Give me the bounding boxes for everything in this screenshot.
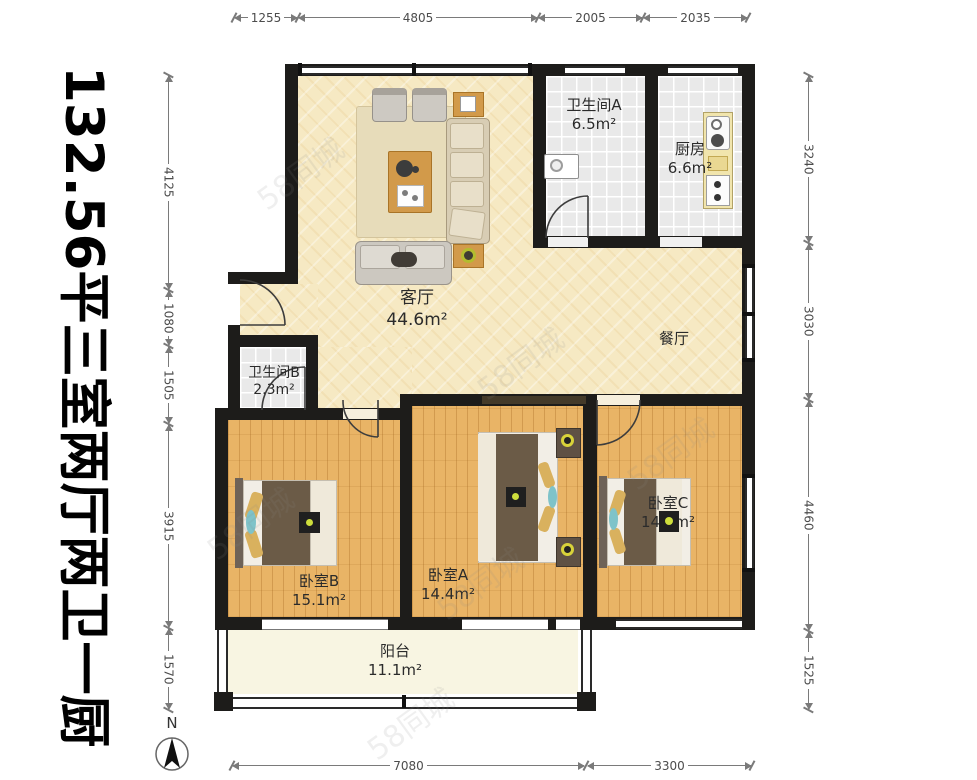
dim-value: 7080 bbox=[390, 759, 427, 773]
dim-value: 1255 bbox=[248, 11, 285, 25]
dim-bottom-1: 7080 bbox=[232, 759, 585, 772]
dim-value: 1570 bbox=[162, 651, 176, 688]
room-name: 客厅 bbox=[386, 287, 447, 309]
dim-value: 1525 bbox=[802, 652, 816, 689]
bathroom-a-door bbox=[546, 196, 589, 239]
room-label-balcony: 阳台 11.1m² bbox=[368, 642, 422, 680]
pillow-round bbox=[609, 508, 618, 530]
burner bbox=[714, 194, 721, 201]
room-area: 2.3m² bbox=[248, 382, 300, 399]
balcony-post bbox=[577, 692, 596, 711]
room-name: 卧室A bbox=[421, 566, 475, 585]
bed-headboard bbox=[235, 478, 243, 568]
wall bbox=[285, 64, 298, 284]
window-mullion bbox=[528, 63, 532, 76]
room-area: 15.1m² bbox=[292, 591, 346, 610]
sliding-window bbox=[262, 619, 388, 630]
dim-top-3: 2005 bbox=[538, 11, 643, 24]
room-label-bathroom-a: 卫生间A 6.5m² bbox=[566, 96, 621, 134]
sliding-window bbox=[556, 619, 580, 630]
dim-right-3: 4460 bbox=[802, 400, 815, 631]
dim-left-1: 4125 bbox=[162, 75, 175, 290]
dim-top-4: 2035 bbox=[643, 11, 748, 24]
sliding-window bbox=[462, 619, 548, 630]
balcony-window bbox=[581, 630, 592, 692]
dim-value: 2035 bbox=[677, 11, 714, 25]
room-name: 卧室B bbox=[292, 572, 346, 591]
room-name: 卫生间B bbox=[248, 365, 300, 382]
armchair bbox=[372, 88, 407, 122]
window bbox=[616, 619, 742, 629]
side-table-item bbox=[460, 96, 476, 112]
bedroom-c-door bbox=[597, 400, 641, 446]
lamp bbox=[561, 434, 574, 447]
room-label-bathroom-b: 卫生间B 2.3m² bbox=[248, 365, 300, 399]
compass-icon bbox=[153, 733, 191, 775]
sofa-cushion bbox=[450, 123, 484, 149]
bed-headboard bbox=[599, 476, 607, 568]
room-label-living: 客厅 44.6m² bbox=[386, 287, 447, 331]
side-table-plant bbox=[461, 248, 476, 263]
bed-tv-dot bbox=[512, 493, 519, 500]
sofa-cushion bbox=[448, 208, 486, 240]
dim-value: 3915 bbox=[162, 508, 176, 545]
window-mullion bbox=[742, 264, 755, 268]
dim-value: 3030 bbox=[802, 303, 816, 340]
wall bbox=[583, 394, 597, 630]
window-mullion bbox=[402, 695, 406, 708]
dim-left-2: 1080 bbox=[162, 290, 175, 346]
faucet bbox=[711, 119, 722, 130]
dim-value: 4460 bbox=[802, 497, 816, 534]
window bbox=[668, 66, 738, 75]
burner bbox=[714, 181, 721, 188]
wall bbox=[228, 335, 318, 347]
bedroom-b-door bbox=[343, 400, 379, 438]
lamp bbox=[561, 543, 574, 556]
listing-title: 132.56平三室两厅两卫一厨 bbox=[46, 66, 120, 734]
dim-top-1: 1255 bbox=[234, 11, 298, 24]
pillow-round bbox=[246, 510, 256, 534]
window-mullion bbox=[412, 63, 416, 76]
sink-basin bbox=[711, 134, 724, 147]
floorplan-page: 132.56平三室两厅两卫一厨 bbox=[0, 0, 977, 780]
dim-value: 1505 bbox=[162, 367, 176, 404]
room-name: 卫生间A bbox=[566, 96, 621, 115]
sofa-cushion bbox=[450, 152, 484, 178]
room-area: 6.5m² bbox=[566, 115, 621, 134]
dim-left-4: 3915 bbox=[162, 424, 175, 628]
dim-value: 3300 bbox=[651, 759, 688, 773]
dim-right-1: 3240 bbox=[802, 75, 815, 243]
room-name: 餐厅 bbox=[659, 330, 689, 349]
teapot bbox=[396, 160, 413, 177]
compass-north-label: N bbox=[160, 714, 184, 732]
entry-door bbox=[240, 280, 286, 326]
room-label-kitchen: 厨房 6.6m² bbox=[668, 140, 712, 178]
window-mullion bbox=[742, 312, 755, 316]
dim-value: 4805 bbox=[400, 11, 437, 25]
dim-right-2: 3030 bbox=[802, 243, 815, 400]
room-label-dining: 餐厅 bbox=[659, 330, 689, 349]
room-label-bedroom-a: 卧室A 14.4m² bbox=[421, 566, 475, 604]
wall bbox=[400, 394, 412, 630]
washing-machine-door bbox=[550, 159, 563, 172]
room-area: 11.1m² bbox=[368, 661, 422, 680]
tray-item bbox=[412, 195, 418, 201]
bed-tv-dot bbox=[306, 519, 313, 526]
window bbox=[300, 66, 532, 75]
room-name: 厨房 bbox=[668, 140, 712, 159]
bed-runner bbox=[478, 434, 496, 561]
dim-value: 2005 bbox=[572, 11, 609, 25]
armchair bbox=[412, 88, 447, 122]
sofa-cushion bbox=[450, 181, 484, 207]
dim-right-4: 1525 bbox=[802, 631, 815, 710]
window-mullion bbox=[742, 474, 755, 478]
stove bbox=[706, 175, 730, 206]
window-mullion bbox=[742, 568, 755, 572]
dim-value: 3240 bbox=[802, 141, 816, 178]
wall bbox=[215, 408, 228, 630]
dim-top-2: 4805 bbox=[298, 11, 538, 24]
sliding-door bbox=[482, 394, 586, 406]
wall bbox=[228, 408, 412, 420]
room-label-bedroom-b: 卧室B 15.1m² bbox=[292, 572, 346, 610]
room-area: 44.6m² bbox=[386, 309, 447, 331]
balcony-post bbox=[214, 692, 233, 711]
dim-value: 1080 bbox=[162, 300, 176, 337]
window-mullion bbox=[742, 358, 755, 362]
tray-item bbox=[402, 190, 408, 196]
wall bbox=[645, 64, 658, 248]
tray bbox=[397, 185, 424, 207]
room-area: 6.6m² bbox=[668, 159, 712, 178]
balcony-window bbox=[217, 630, 228, 692]
dim-left-3: 1505 bbox=[162, 346, 175, 424]
loveseat-item bbox=[391, 252, 417, 267]
window bbox=[565, 66, 625, 75]
door-opening bbox=[660, 237, 702, 247]
window bbox=[745, 478, 754, 570]
room-area: 14.4m² bbox=[421, 585, 475, 604]
dim-left-5: 1570 bbox=[162, 628, 175, 710]
dim-bottom-2: 3300 bbox=[587, 759, 752, 772]
pillow-round bbox=[548, 486, 557, 508]
hall-strip-floor bbox=[318, 347, 412, 408]
bed-tv-dot bbox=[665, 517, 673, 525]
window-mullion bbox=[298, 63, 302, 76]
cup bbox=[412, 166, 419, 173]
room-name: 阳台 bbox=[368, 642, 422, 661]
dim-value: 4125 bbox=[162, 164, 176, 201]
